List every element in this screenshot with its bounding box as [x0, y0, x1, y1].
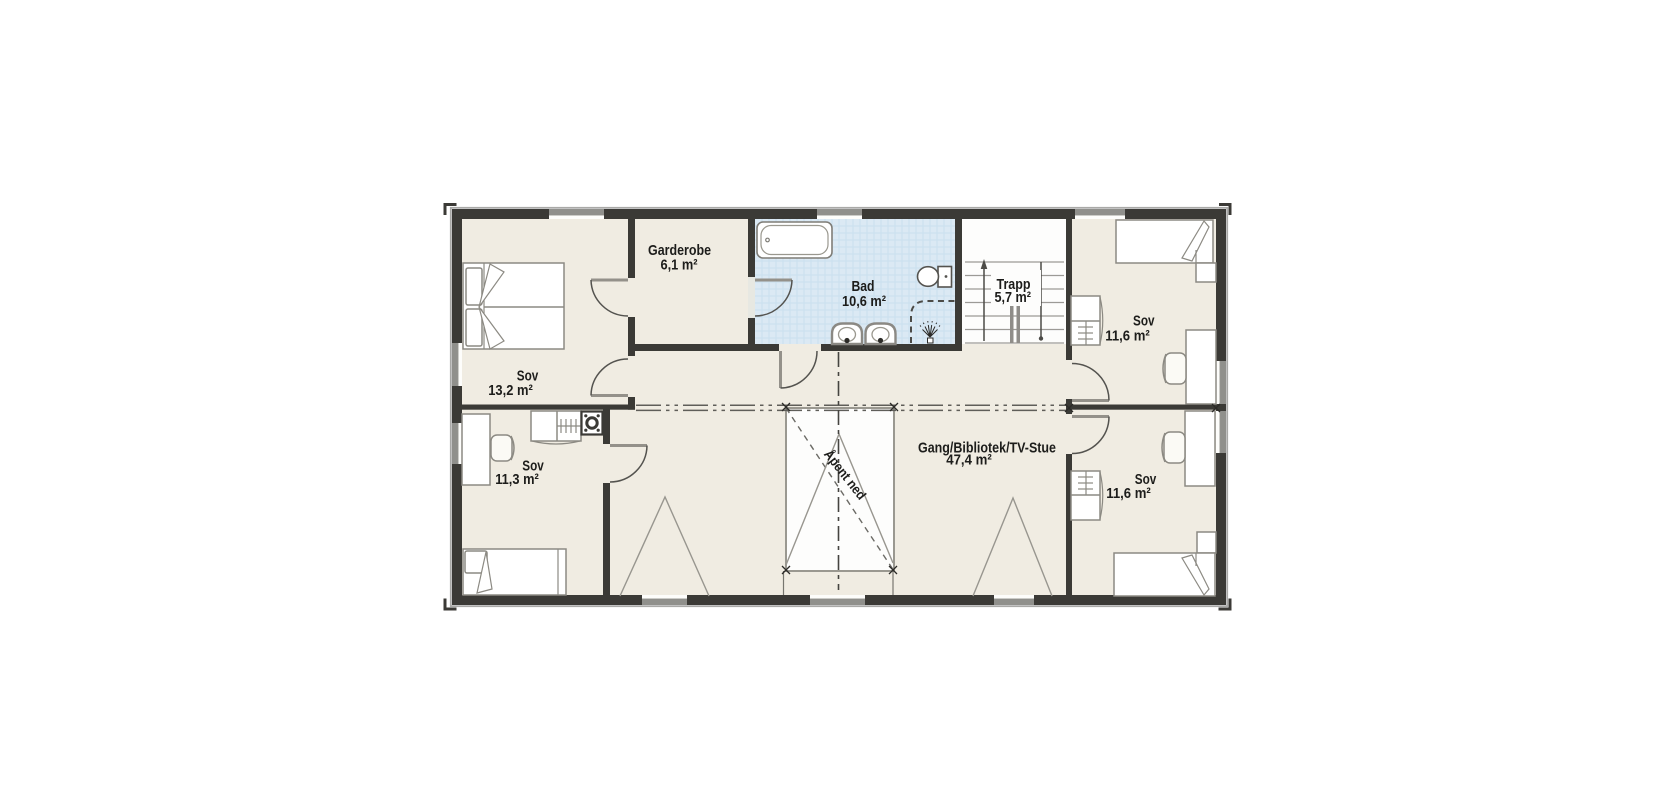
svg-text:11,6 m²: 11,6 m²	[1105, 327, 1150, 344]
svg-text:11,6 m²: 11,6 m²	[1106, 485, 1151, 502]
svg-text:13,2 m²: 13,2 m²	[488, 382, 533, 399]
svg-text:6,1 m²: 6,1 m²	[661, 257, 698, 274]
svg-text:47,4 m²: 47,4 m²	[946, 452, 992, 469]
svg-text:5,7 m²: 5,7 m²	[994, 289, 1031, 306]
svg-text:11,3 m²: 11,3 m²	[495, 471, 539, 488]
svg-text:10,6 m²: 10,6 m²	[842, 293, 886, 310]
